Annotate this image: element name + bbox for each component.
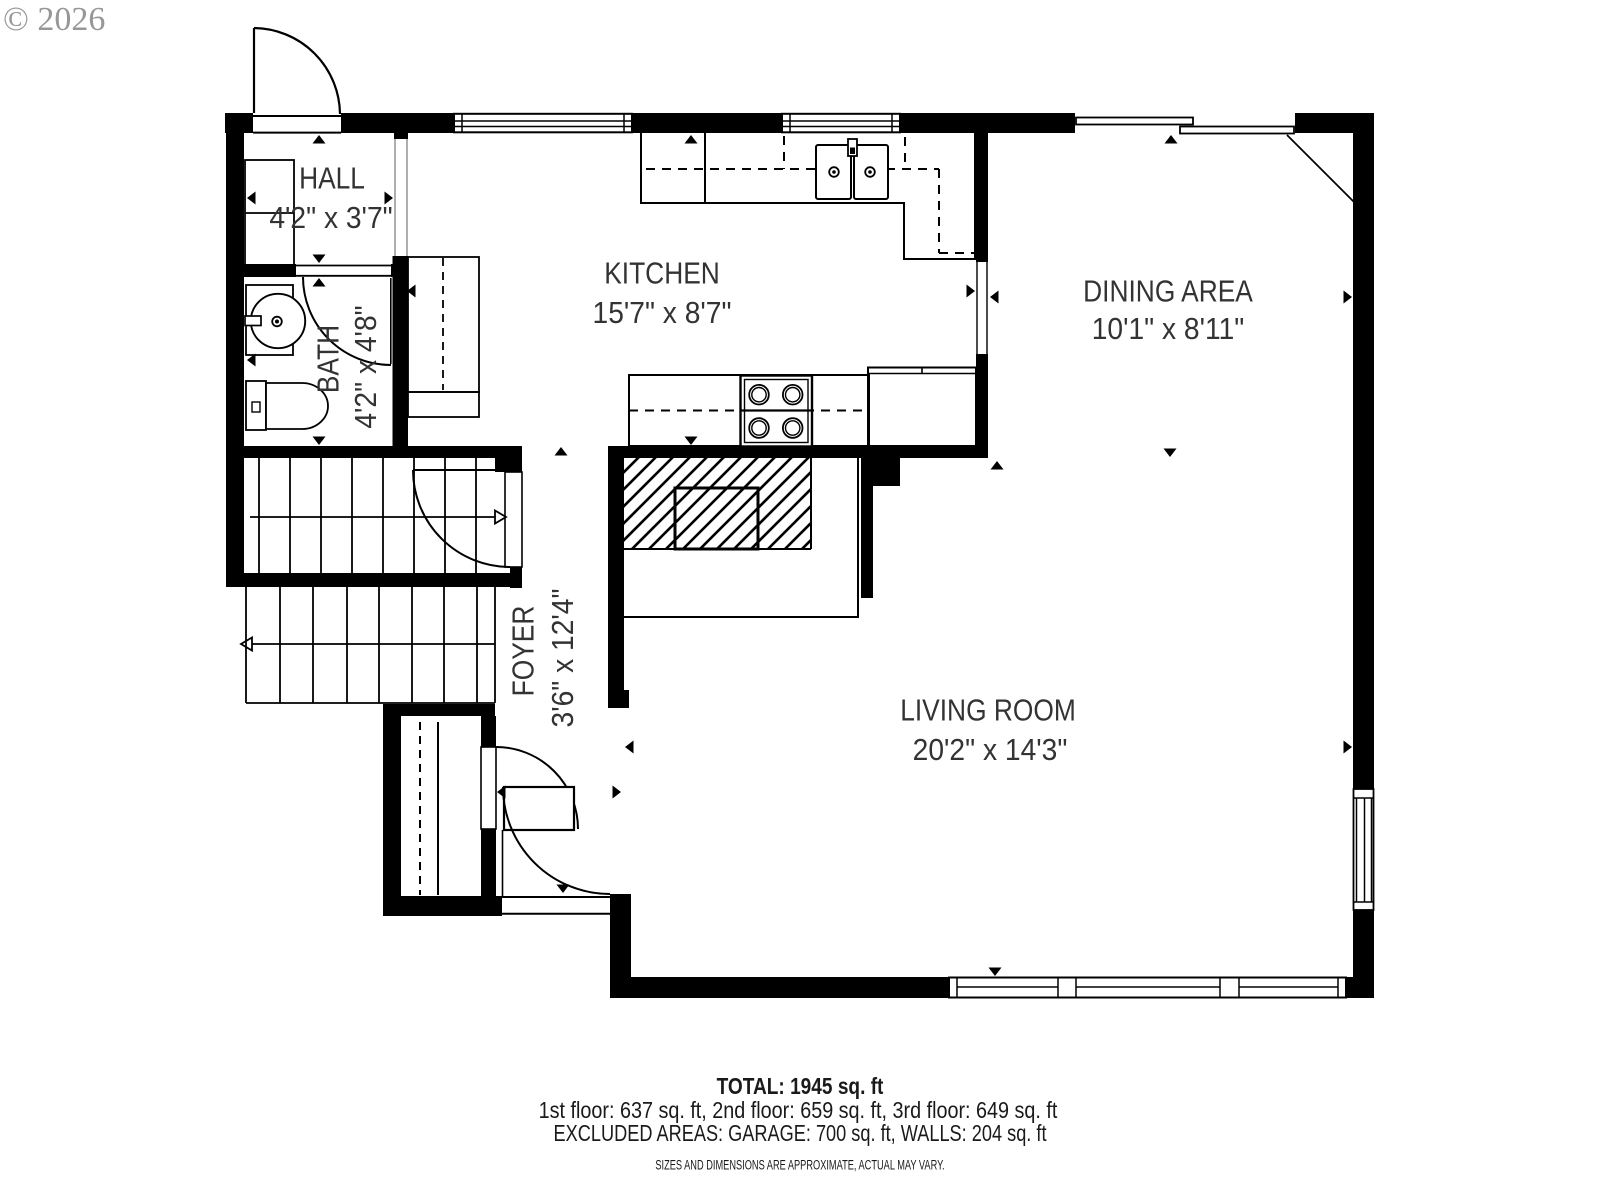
svg-text:LIVING ROOM: LIVING ROOM bbox=[900, 694, 1076, 728]
svg-text:4'2" x 3'7": 4'2" x 3'7" bbox=[269, 201, 392, 236]
svg-text:3'6" x 12'4": 3'6" x 12'4" bbox=[546, 589, 581, 728]
svg-text:DINING AREA: DINING AREA bbox=[1083, 275, 1253, 309]
svg-text:KITCHEN: KITCHEN bbox=[604, 257, 720, 291]
svg-text:© 2026: © 2026 bbox=[3, 1, 105, 38]
svg-text:15'7" x 8'7": 15'7" x 8'7" bbox=[593, 296, 732, 331]
svg-text:10'1" x 8'11": 10'1" x 8'11" bbox=[1092, 312, 1245, 347]
svg-text:20'2" x 14'3": 20'2" x 14'3" bbox=[913, 733, 1068, 768]
svg-text:FOYER: FOYER bbox=[507, 606, 541, 697]
svg-text:EXCLUDED AREAS: GARAGE: 700 sq: EXCLUDED AREAS: GARAGE: 700 sq. ft, WALL… bbox=[554, 1121, 1047, 1147]
svg-text:SIZES AND DIMENSIONS ARE APPRO: SIZES AND DIMENSIONS ARE APPROXIMATE, AC… bbox=[655, 1157, 944, 1174]
svg-text:4'2" x 4'8": 4'2" x 4'8" bbox=[349, 305, 384, 428]
svg-text:BATH: BATH bbox=[312, 325, 346, 393]
svg-text:TOTAL: 1945 sq. ft: TOTAL: 1945 sq. ft bbox=[717, 1074, 884, 1099]
svg-text:1st floor: 637 sq. ft, 2nd flo: 1st floor: 637 sq. ft, 2nd floor: 659 sq… bbox=[539, 1098, 1058, 1124]
svg-text:HALL: HALL bbox=[299, 162, 365, 196]
